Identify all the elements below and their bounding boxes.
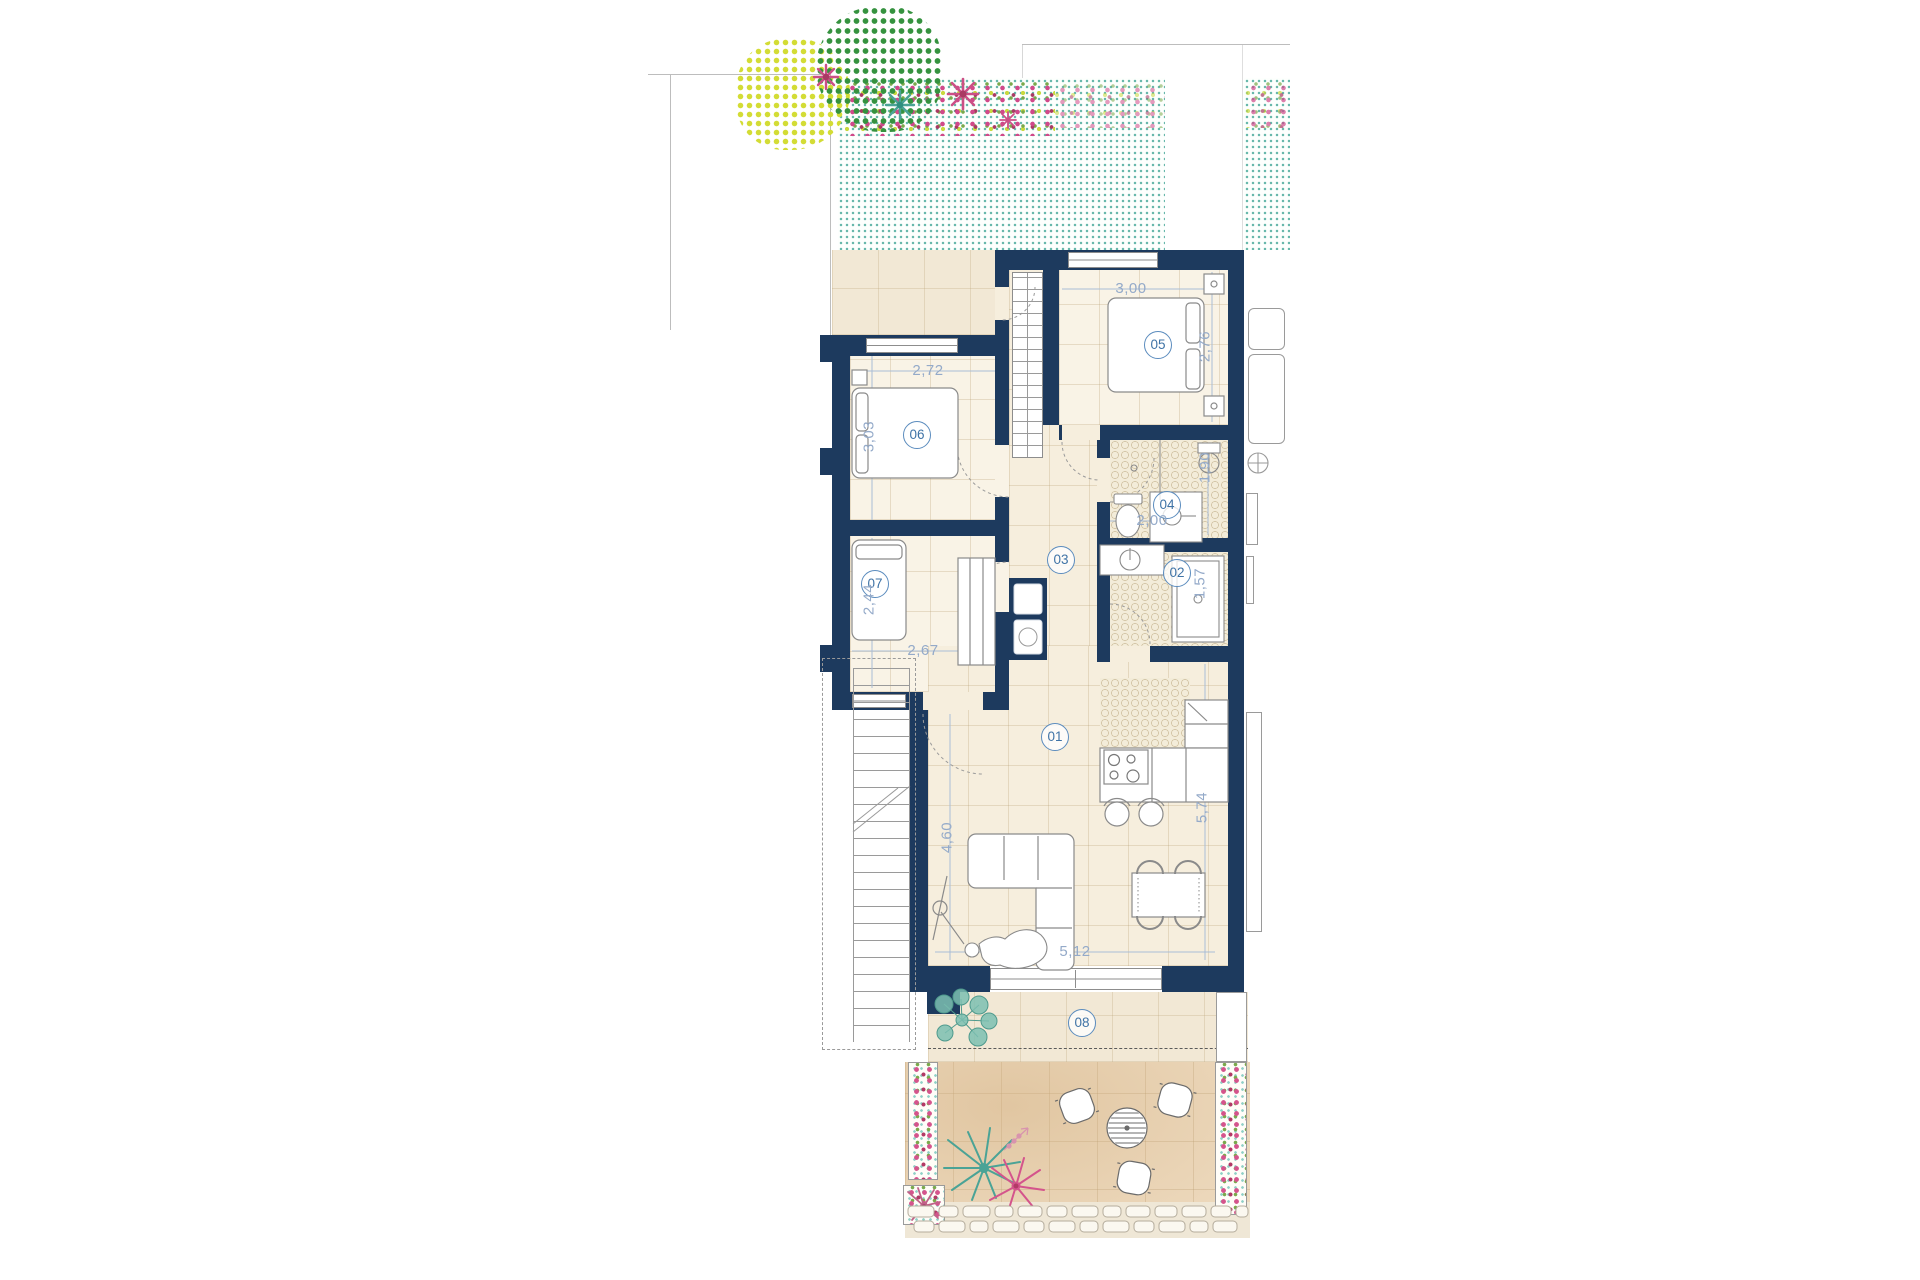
tree-canopy-green (816, 6, 942, 132)
neighbor-bed-body (1248, 354, 1285, 444)
dim-bedroom07-depth: 2,44 (861, 570, 878, 630)
boundary-line (1022, 44, 1290, 45)
room-label-05: 05 (1144, 331, 1172, 359)
washer-unit-block (1009, 578, 1047, 660)
wall-pilaster (820, 448, 850, 475)
window (1068, 252, 1158, 268)
wall (1097, 538, 1228, 552)
planter-pedestal (1216, 992, 1247, 1062)
dim-bathroom04-depth: 1,90 (1197, 438, 1214, 498)
entrance-patio-floor (832, 250, 995, 335)
neighbor-shower (1246, 493, 1258, 545)
stone-path-bed (905, 1202, 1250, 1238)
room-label-02: 02 (1163, 559, 1191, 587)
door-opening (995, 445, 1009, 497)
kitchen-floor (1100, 678, 1190, 750)
neighbor-window (1246, 556, 1254, 604)
terrace-dashed-line (928, 1048, 1248, 1049)
floor-plan-canvas: 01 02 03 04 05 06 07 08 3,00 2,76 2,72 3… (0, 0, 1920, 1280)
wall-stub (927, 992, 960, 1014)
door-opening (1062, 425, 1100, 440)
boundary-line (670, 74, 671, 330)
garden-flower-border (1055, 84, 1165, 128)
dim-bedroom05-depth: 2,76 (1197, 317, 1214, 377)
room-label-06: 06 (903, 421, 931, 449)
wall-party (1228, 250, 1244, 992)
flower-planter-right (1215, 1062, 1247, 1215)
dim-bedroom07-width: 2,67 (893, 642, 953, 659)
dim-living-right: 5,74 (1194, 778, 1211, 838)
dim-living-left: 4,60 (939, 808, 956, 868)
neighbor-bed-pillow (1248, 308, 1285, 350)
window (866, 338, 958, 353)
sliding-door-mullion (1075, 970, 1076, 988)
door-opening (995, 562, 1009, 612)
door-opening (923, 692, 983, 710)
wall (1162, 966, 1244, 992)
wall (910, 966, 990, 992)
dim-bathroom04-width: 2,00 (1122, 512, 1182, 529)
sliding-door (990, 968, 1162, 990)
door-opening (1097, 458, 1110, 502)
room-label-03: 03 (1047, 546, 1075, 574)
wall-pilaster (820, 335, 850, 362)
dim-bedroom05-width: 3,00 (1101, 280, 1161, 297)
dim-bedroom06-depth: 3,03 (861, 407, 878, 467)
dim-bedroom06-width: 2,72 (898, 362, 958, 379)
dim-living-width: 5,12 (1045, 943, 1105, 960)
wardrobe-hangers (1012, 272, 1043, 458)
garden-flower-border (1246, 82, 1290, 128)
dim-bathroom02-depth: 1,57 (1192, 554, 1209, 614)
neighbor-sink (1248, 453, 1268, 473)
room-label-08: 08 (1068, 1009, 1096, 1037)
door-opening (995, 287, 1009, 320)
flower-planter-left-low (903, 1185, 945, 1225)
door-opening (1110, 646, 1150, 662)
room-label-01: 01 (1041, 723, 1069, 751)
wall (850, 520, 995, 536)
flower-planter-left (908, 1062, 938, 1180)
exterior-stairs (853, 668, 910, 1042)
neighbor-kitchen-column (1246, 712, 1262, 932)
wall (1043, 250, 1059, 425)
boundary-line (1242, 44, 1243, 250)
